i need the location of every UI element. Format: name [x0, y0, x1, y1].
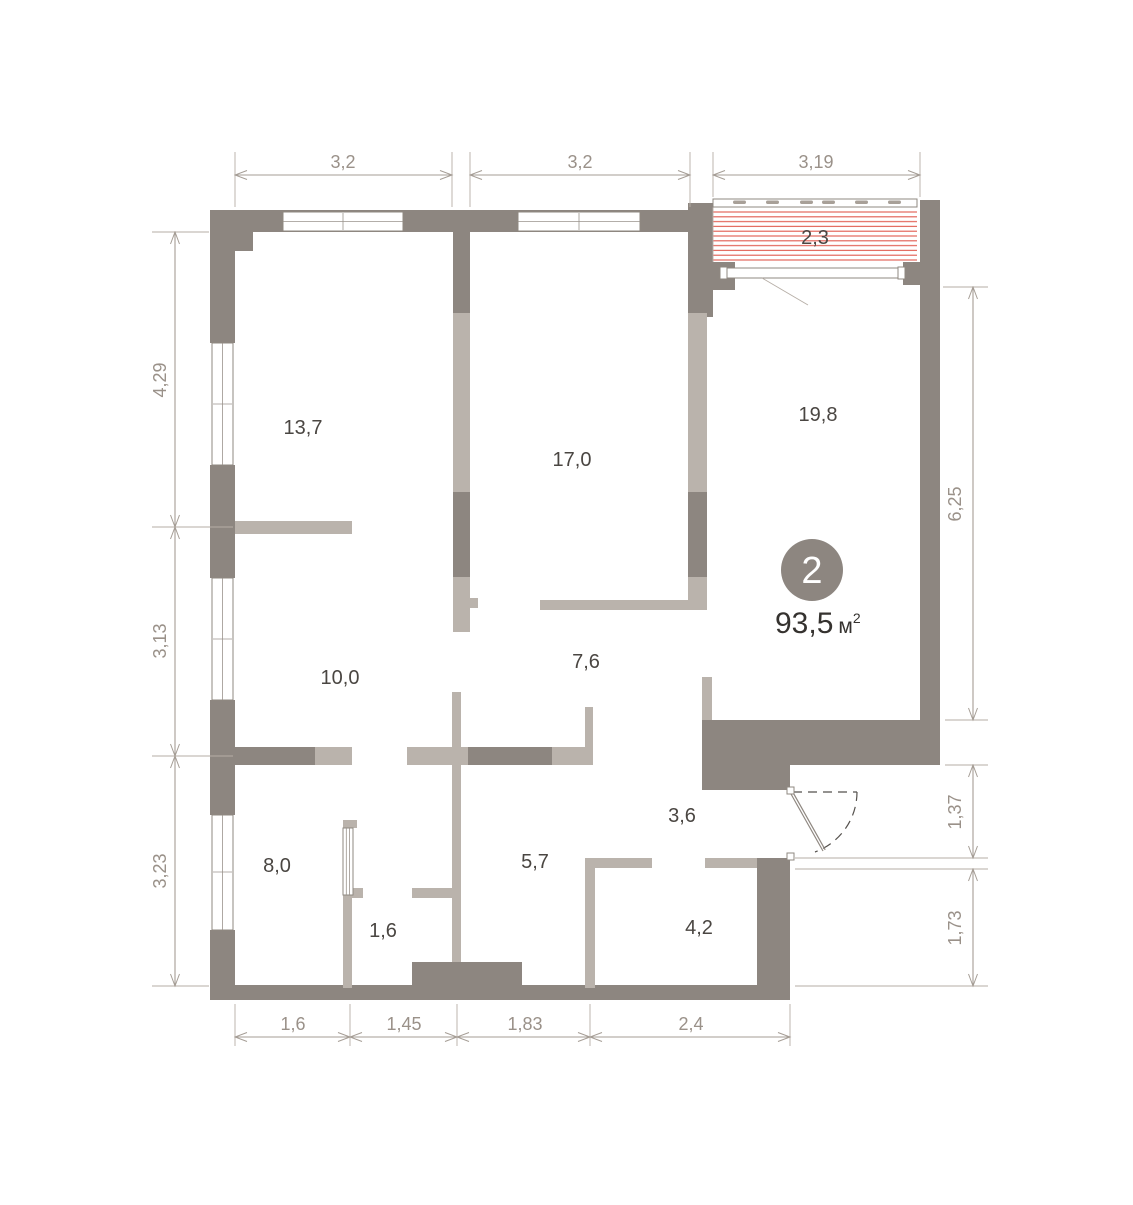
interior-partitions	[235, 313, 757, 988]
dim-label-right-1: 6,25	[945, 486, 965, 521]
dim-label-right-2: 1,37	[945, 794, 965, 829]
room-area-label-1: 13,7	[284, 417, 323, 439]
dim-label-bottom-2: 1,45	[386, 1014, 421, 1034]
closet-door	[343, 828, 353, 895]
dim-label-top-2: 3,2	[567, 152, 592, 172]
room-area-label-4: 10,0	[321, 667, 360, 689]
unit-badge: 2 93,5м2	[775, 539, 861, 640]
window-top-2	[518, 212, 640, 231]
dim-label-top-1: 3,2	[330, 152, 355, 172]
dim-label-left-3: 3,23	[150, 853, 170, 888]
room-area-label-6: 8,0	[263, 855, 291, 877]
room-area-label-9: 3,6	[668, 805, 696, 827]
rooms-count-label: 2	[801, 550, 822, 592]
balcony-area-label: 2,3	[801, 227, 829, 249]
dimensions-right: 6,25 1,37 1,73	[943, 287, 988, 986]
floor-plan-drawing: 3,2 3,2 3,19 4,29 3,13 3,23 6,25 1,37 1,…	[0, 0, 1133, 1200]
room-area-label-7: 1,6	[369, 920, 397, 942]
dim-label-bottom-1: 1,6	[280, 1014, 305, 1034]
floor-plan: 3,2 3,2 3,19 4,29 3,13 3,23 6,25 1,37 1,…	[0, 0, 1133, 1200]
dim-label-left-1: 4,29	[150, 362, 170, 397]
room-area-label-10: 4,2	[685, 917, 713, 939]
window-left-1	[212, 343, 233, 465]
balcony-door-window	[723, 268, 903, 278]
dim-label-left-2: 3,13	[150, 623, 170, 658]
balcony	[713, 199, 917, 305]
total-area-label: 93,5м2	[775, 607, 861, 640]
room-area-label-2: 17,0	[553, 449, 592, 471]
dim-label-top-3: 3,19	[798, 152, 833, 172]
window-top-1	[283, 212, 403, 231]
entrance-door	[787, 787, 857, 860]
room-area-label-5: 7,6	[572, 651, 600, 673]
window-left-3	[212, 815, 233, 930]
interior-walls-dark	[235, 232, 707, 765]
dim-label-bottom-4: 2,4	[678, 1014, 703, 1034]
dim-label-right-3: 1,73	[945, 910, 965, 945]
window-left-2	[212, 578, 233, 700]
balcony-door-swing-line	[762, 278, 808, 305]
room-area-label-8: 5,7	[521, 851, 549, 873]
dim-label-bottom-3: 1,83	[507, 1014, 542, 1034]
dimensions-bottom: 1,6 1,45 1,83 2,4	[235, 1004, 790, 1046]
room-area-label-3: 19,8	[799, 404, 838, 426]
